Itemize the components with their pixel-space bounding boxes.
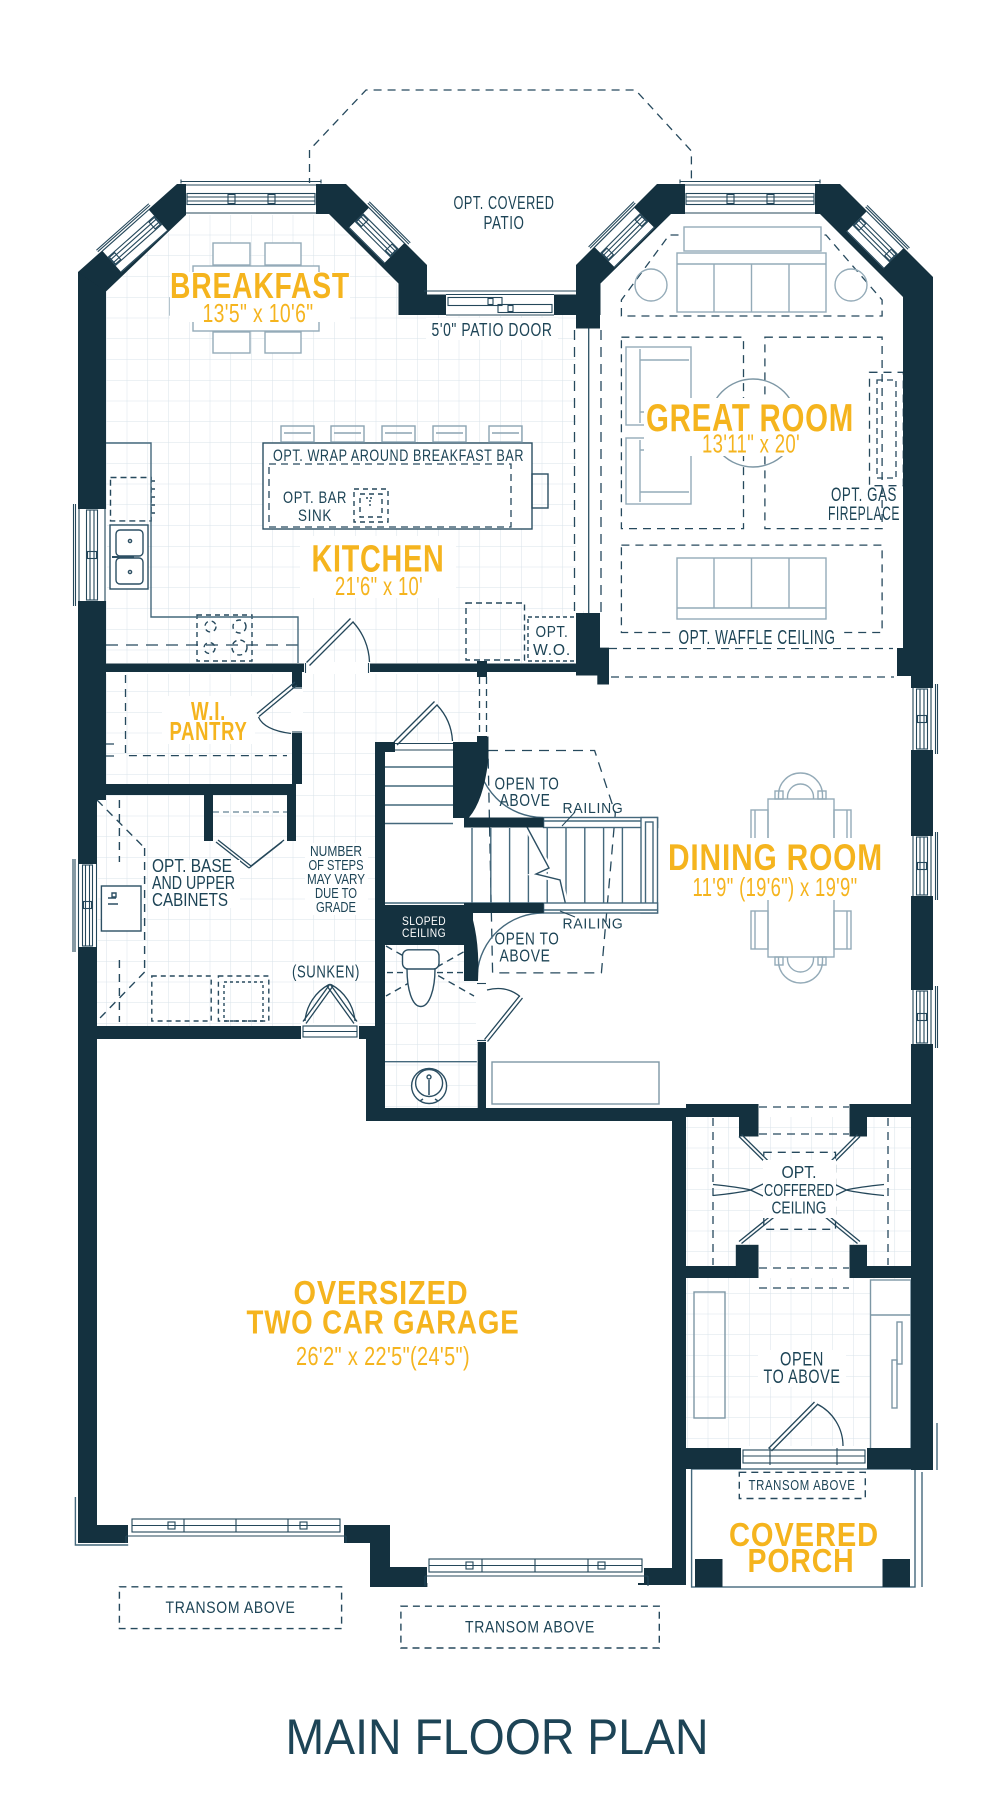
svg-text:13'5" x 10'6": 13'5" x 10'6" [203,298,314,328]
svg-text:W.O.: W.O. [533,642,571,659]
svg-text:26'2" x 22'5"(24'5"): 26'2" x 22'5"(24'5") [296,1341,470,1371]
svg-text:TO ABOVE: TO ABOVE [764,1367,841,1388]
svg-text:OPT. WRAP AROUND BREAKFAST BAR: OPT. WRAP AROUND BREAKFAST BAR [273,446,524,465]
svg-text:CEILING: CEILING [772,1198,827,1218]
svg-text:SINK: SINK [298,506,332,525]
svg-text:CEILING: CEILING [402,926,446,940]
svg-text:OPT. BAR: OPT. BAR [283,488,347,507]
svg-text:(SUNKEN): (SUNKEN) [292,962,360,982]
svg-text:OPT.: OPT. [536,624,569,641]
svg-text:TRANSOM ABOVE: TRANSOM ABOVE [166,1599,296,1617]
svg-text:5'0" PATIO DOOR: 5'0" PATIO DOOR [432,319,553,340]
svg-text:RAILING: RAILING [563,916,624,933]
svg-text:GRADE: GRADE [316,900,356,916]
svg-text:PANTRY: PANTRY [170,716,248,746]
svg-text:13'11" x 20': 13'11" x 20' [702,429,800,459]
svg-text:21'6" x 10': 21'6" x 10' [335,571,423,601]
svg-text:OPT. GAS: OPT. GAS [831,485,897,506]
svg-text:OPT. COVERED: OPT. COVERED [454,192,555,213]
svg-text:ABOVE: ABOVE [500,946,551,966]
svg-text:PORCH: PORCH [748,1542,855,1579]
svg-text:RAILING: RAILING [563,800,624,817]
svg-text:MAIN FLOOR PLAN: MAIN FLOOR PLAN [286,1709,709,1765]
svg-text:ABOVE: ABOVE [500,790,551,810]
svg-text:TRANSOM ABOVE: TRANSOM ABOVE [465,1619,595,1637]
svg-text:TWO CAR GARAGE: TWO CAR GARAGE [247,1304,520,1341]
svg-text:OPT. WAFFLE CEILING: OPT. WAFFLE CEILING [679,627,836,649]
svg-text:OPT.: OPT. [782,1162,817,1182]
svg-text:TRANSOM ABOVE: TRANSOM ABOVE [749,1478,856,1494]
svg-text:CABINETS: CABINETS [152,889,228,910]
svg-text:11'9" (19'6") x 19'9": 11'9" (19'6") x 19'9" [693,872,858,902]
svg-text:FIREPLACE: FIREPLACE [828,504,900,525]
svg-text:PATIO: PATIO [484,212,525,233]
